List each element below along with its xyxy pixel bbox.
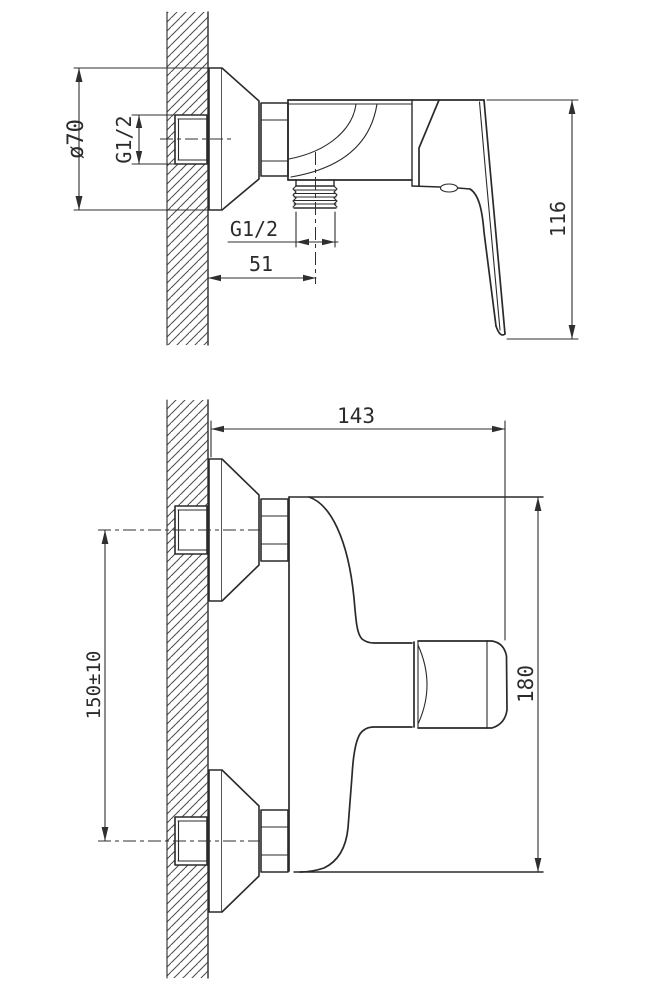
- mixer-installation-drawing: ø70 G1/2: [0, 0, 648, 1000]
- dim-label-handle-height: 116: [546, 201, 570, 237]
- dim-label-outlet-thread: G1/2: [230, 217, 278, 241]
- dim-label-connection-spacing: 150±10: [83, 651, 105, 720]
- overall-height-dimension: 180: [514, 497, 541, 872]
- dim-label-flange-diameter: ø70: [64, 119, 89, 159]
- dim-label-overall-height: 180: [514, 665, 538, 703]
- side-view: ø70 G1/2: [64, 12, 578, 345]
- wall-to-outlet-dimension: 51: [208, 252, 316, 281]
- connection-spacing-dimension: 150±10: [83, 530, 108, 841]
- dim-label-wall-to-outlet: 51: [249, 252, 273, 276]
- handle-height-dimension: 116: [487, 100, 578, 339]
- handle-lever-side: [412, 100, 505, 335]
- hex-nut-side: [261, 103, 288, 176]
- mixer-body-side: [288, 100, 484, 186]
- outlet-thread-dimension: G1/2: [228, 212, 338, 247]
- control-knob-front: [414, 641, 507, 728]
- dim-label-inlet-thread: G1/2: [112, 115, 136, 163]
- wall-section: [167, 12, 208, 345]
- technical-drawing-sheet: ø70 G1/2: [0, 0, 648, 1000]
- front-view: 143 150±10 180: [83, 400, 543, 978]
- wall-section-front: [167, 400, 208, 978]
- dim-label-depth: 143: [337, 404, 375, 428]
